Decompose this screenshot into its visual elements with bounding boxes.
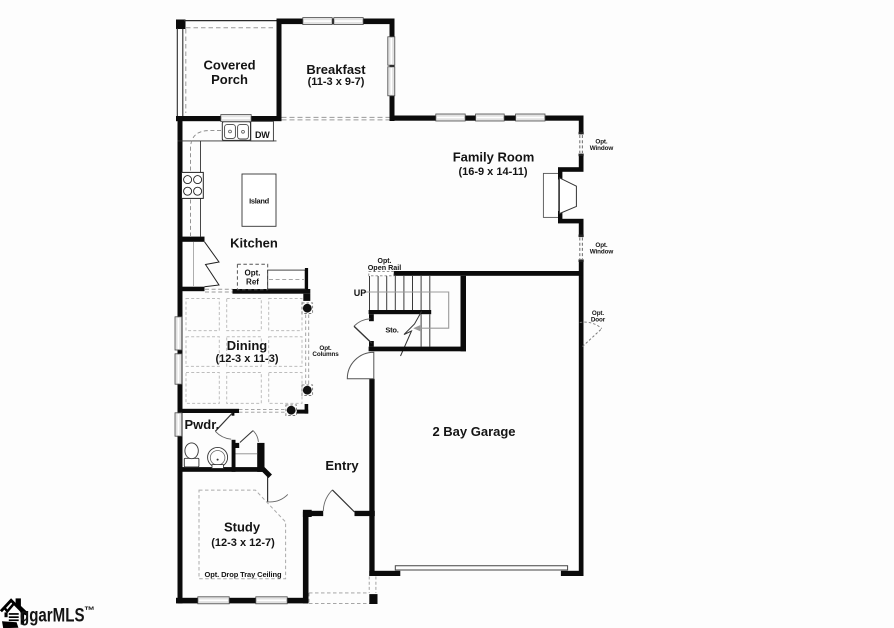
svg-text:(11-3 x 9-7): (11-3 x 9-7) — [308, 76, 365, 88]
svg-text:Porch: Porch — [211, 72, 248, 87]
svg-text:™: ™ — [84, 605, 95, 617]
svg-text:Sto.: Sto. — [385, 326, 398, 335]
svg-text:Opt.: Opt. — [245, 268, 261, 277]
svg-text:Study: Study — [224, 520, 261, 535]
svg-text:Ref: Ref — [246, 277, 259, 286]
svg-text:(16-9 x 14-11): (16-9 x 14-11) — [458, 166, 527, 178]
svg-text:DW: DW — [255, 130, 270, 140]
svg-text:UP: UP — [354, 288, 367, 298]
svg-text:Open Rail: Open Rail — [368, 263, 402, 272]
svg-text:Covered: Covered — [203, 57, 255, 72]
svg-text:Columns: Columns — [312, 351, 339, 358]
svg-text:Family Room: Family Room — [453, 150, 535, 165]
svg-text:2 Bay Garage: 2 Bay Garage — [432, 424, 515, 439]
svg-text:ggarMLS: ggarMLS — [20, 605, 85, 627]
svg-text:Island: Island — [249, 197, 270, 206]
svg-text:Pwdr.: Pwdr. — [185, 417, 220, 432]
svg-text:Dining: Dining — [227, 338, 267, 353]
svg-text:Window: Window — [590, 145, 614, 152]
svg-text:Window: Window — [590, 249, 614, 256]
svg-text:Opt. Drop Tray Ceiling: Opt. Drop Tray Ceiling — [205, 570, 282, 579]
svg-text:(12-3 x 11-3): (12-3 x 11-3) — [216, 353, 279, 365]
svg-text:Entry: Entry — [325, 458, 359, 473]
svg-text:Door: Door — [591, 316, 606, 323]
svg-text:Breakfast: Breakfast — [306, 62, 366, 77]
svg-text:Kitchen: Kitchen — [230, 236, 278, 251]
svg-text:(12-3 x 12-7): (12-3 x 12-7) — [211, 537, 275, 549]
